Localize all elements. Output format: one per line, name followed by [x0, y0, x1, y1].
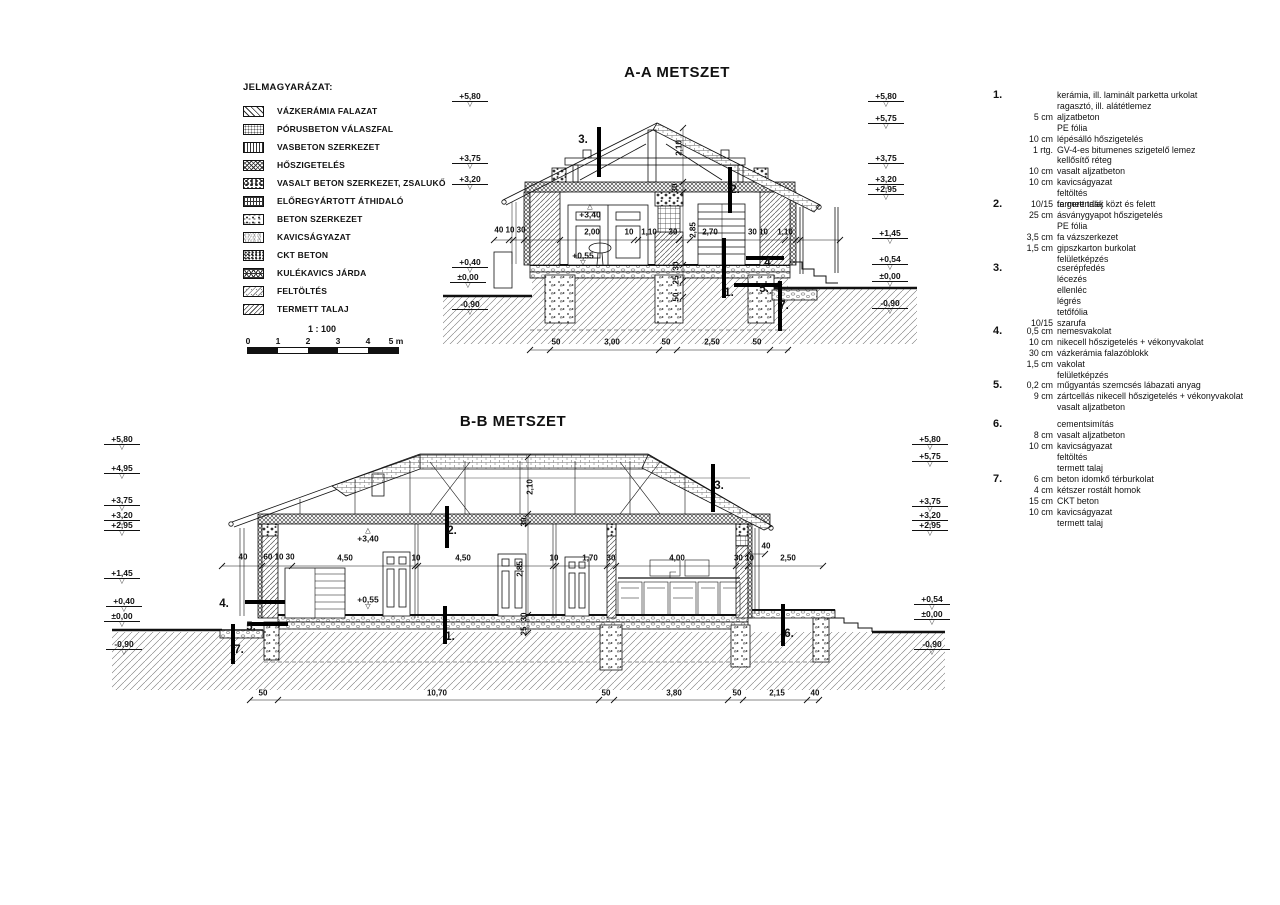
callout-number: 2. [447, 525, 457, 537]
legend: JELMAGYARÁZAT: VÁZKERÁMIA FALAZAT PÓRUSB… [243, 82, 473, 318]
dimension-label: 50 [753, 338, 762, 347]
note-row: 10 cmnikecell hőszigetelés + vékonyvakol… [1013, 337, 1280, 348]
legend-swatch [243, 106, 264, 117]
note: 2.10/15fa gerendák közt és felett25 cmás… [993, 199, 1280, 264]
legend-item: KULÉKAVICS JÁRDA [243, 264, 473, 282]
callout-number: 3. [578, 134, 588, 146]
dimension-label: 40 [239, 553, 248, 562]
blueprint-sheet: A-A METSZET B-B METSZET JELMAGYARÁZAT: V… [0, 0, 1280, 905]
level-triangle-icon [887, 239, 892, 245]
legend-swatch [243, 160, 264, 171]
legend-item-label: PÓRUSBETON VÁLASZFAL [277, 124, 393, 134]
level-triangle-icon [465, 283, 470, 289]
note-row: tetőfólia [1013, 307, 1280, 318]
note-number: 7. [993, 473, 1002, 485]
note-row: vasalt aljzatbeton [1013, 402, 1280, 413]
legend-swatch [243, 124, 264, 135]
dimension-label: 50 [602, 689, 611, 698]
scale-tick-label: 4 [366, 336, 371, 346]
note-row: 10/15fa gerendák közt és felett [1013, 199, 1280, 210]
note-row: ragasztó, ill. alátétlemez [1013, 101, 1280, 112]
level-marker: ±0,00 [450, 273, 486, 289]
bb-drawing [110, 430, 960, 710]
note-row: cserépfedés [1013, 263, 1280, 274]
note-row: 30 cmvázkerámia falazóblokk [1013, 348, 1280, 359]
legend-swatch [243, 268, 264, 279]
note-number: 2. [993, 198, 1002, 210]
note-row: 0,2 cmműgyantás szemcsés lábazati anyag [1013, 380, 1280, 391]
dimension-label: 10,70 [427, 689, 447, 698]
level-triangle-icon [883, 195, 888, 201]
note-row: feltöltés [1013, 188, 1280, 199]
level-marker: -0,90 [872, 299, 908, 315]
level-marker: +5,80 [452, 92, 488, 108]
dimension-label: 2,85 [516, 561, 525, 577]
callout-number: 1. [724, 287, 734, 299]
dimension-label: 30 [672, 262, 681, 271]
dimension-label: 1,10 [641, 228, 657, 237]
level-marker: -0,90 [452, 300, 488, 316]
callout-number: 7. [779, 300, 789, 312]
legend-item: VASBETON SZERKEZET [243, 138, 473, 156]
legend-item: KAVICSÁGYAZAT [243, 228, 473, 246]
dimension-label: 2,15 [769, 689, 785, 698]
scale-tick-label: 3 [336, 336, 341, 346]
callout-number: 4. [764, 257, 774, 269]
section-title-bb: B-B METSZET [413, 413, 613, 430]
dimension-label: 1,10 [777, 228, 793, 237]
dimension-label: 30 [671, 184, 680, 193]
level-triangle-icon [119, 531, 124, 537]
level-triangle-icon [119, 579, 124, 585]
callout-number: 3. [714, 480, 724, 492]
callout-number: 2. [730, 184, 740, 196]
level-marker: +3,75 [868, 154, 904, 170]
level-marker: +3,20 [452, 175, 488, 191]
note-row: 4 cmkétszer rostált homok [1013, 485, 1280, 496]
note-number: 4. [993, 325, 1002, 337]
scale-bar-graphic [247, 347, 399, 354]
scale-segment [248, 348, 278, 353]
spot-triangle-icon [365, 605, 370, 611]
legend-item: BETON SZERKEZET [243, 210, 473, 228]
level-triangle-icon [883, 164, 888, 170]
note-row: kellősítő réteg [1013, 155, 1280, 166]
note-row: 10 cmkavicságyazat [1013, 507, 1280, 518]
note-row: 8 cmvasalt aljzatbeton [1013, 430, 1280, 441]
dimension-label: 30 10 [734, 554, 754, 563]
level-triangle-icon [929, 620, 934, 626]
note-row: 3,5 cmfa vázszerkezet [1013, 232, 1280, 243]
note-row: lécezés [1013, 274, 1280, 285]
note: 6.cementsimítás8 cmvasalt aljzatbeton10 … [993, 419, 1280, 474]
level-marker: +3,75 [452, 154, 488, 170]
legend-item-label: VASALT BETON SZERKEZET, ZSALUKŐ [277, 178, 446, 188]
callout-bar [597, 127, 601, 177]
level-triangle-icon [927, 462, 932, 468]
legend-item: HŐSZIGETELÉS [243, 156, 473, 174]
level-marker: +2,95 [912, 521, 948, 537]
note-row: 10 cmlépésálló hőszigetelés [1013, 134, 1280, 145]
level-marker: +0,54 [872, 255, 908, 271]
note-number: 1. [993, 89, 1002, 101]
note-row: PE fólia [1013, 123, 1280, 134]
dimension-label: 2,50 [704, 338, 720, 347]
legend-swatch [243, 142, 264, 153]
note: 5.0,2 cmműgyantás szemcsés lábazati anya… [993, 380, 1280, 413]
legend-swatch [243, 232, 264, 243]
dimension-label: 40 10 30 [494, 226, 525, 235]
note-row: 9 cmzártcellás nikecell hőszigetelés + v… [1013, 391, 1280, 402]
level-triangle-icon [883, 124, 888, 130]
legend-items: VÁZKERÁMIA FALAZAT PÓRUSBETON VÁLASZFAL … [243, 102, 473, 318]
dimension-label: 4,50 [337, 554, 353, 563]
dimension-label: 2,10 [675, 140, 684, 156]
scale-segment [338, 348, 368, 353]
legend-item-label: BETON SZERKEZET [277, 214, 363, 224]
note: 1.kerámia, ill. laminált parketta urkola… [993, 90, 1280, 210]
callout-number: 5. [759, 283, 769, 295]
note-row: 10 cmkavicságyazat [1013, 441, 1280, 452]
level-triangle-icon [927, 531, 932, 537]
spot-level: +3,40 [579, 205, 601, 220]
note-row: 1,5 cmgipszkarton burkolat [1013, 243, 1280, 254]
legend-item-label: VÁZKERÁMIA FALAZAT [277, 106, 377, 116]
spot-triangle-icon [580, 261, 585, 267]
legend-item: FELTÖLTÉS [243, 282, 473, 300]
legend-swatch [243, 178, 264, 189]
legend-item-label: VASBETON SZERKEZET [277, 142, 380, 152]
aa-graphics [443, 123, 917, 353]
level-triangle-icon [467, 310, 472, 316]
dimension-label: 10 [625, 228, 634, 237]
level-triangle-icon [887, 309, 892, 315]
level-triangle-icon [467, 185, 472, 191]
dimension-label: 2,70 [702, 228, 718, 237]
level-marker: ±0,00 [914, 610, 950, 626]
note-row: termett talaj [1013, 463, 1280, 474]
dimension-label: 1,70 [582, 554, 598, 563]
level-marker: +4,95 [104, 464, 140, 480]
legend-item: TERMETT TALAJ [243, 300, 473, 318]
note: 7.6 cmbeton idomkő térburkolat4 cmkétsze… [993, 474, 1280, 529]
dimension-label: 2,50 [780, 554, 796, 563]
legend-swatch [243, 286, 264, 297]
callout-number: 7. [234, 644, 244, 656]
legend-item: VÁZKERÁMIA FALAZAT [243, 102, 473, 120]
dimension-label: 2,00 [584, 228, 600, 237]
callout-bar [245, 600, 285, 604]
dimension-label: 3,00 [604, 338, 620, 347]
legend-swatch [243, 196, 264, 207]
dimension-label: 40 [811, 689, 820, 698]
level-triangle-icon [119, 445, 124, 451]
dimension-label: 30 [520, 613, 529, 622]
dimension-label: 10 [550, 554, 559, 563]
note-row: 5 cmaljzatbeton [1013, 112, 1280, 123]
legend-item: CKT BETON [243, 246, 473, 264]
level-triangle-icon [887, 282, 892, 288]
dimension-label: 10 [412, 554, 421, 563]
level-triangle-icon [467, 102, 472, 108]
spot-level: +0,55 [572, 252, 594, 267]
level-marker: +5,80 [912, 435, 948, 451]
level-marker: ±0,00 [872, 272, 908, 288]
spot-value: +3,40 [357, 535, 379, 544]
level-marker: +5,80 [868, 92, 904, 108]
dimension-label: 25 [672, 276, 681, 285]
dimension-label: 50 [552, 338, 561, 347]
level-triangle-icon [121, 650, 126, 656]
dimension-label: 50 [733, 689, 742, 698]
note-row: felületképzés [1013, 370, 1280, 381]
dimension-label: 25 [520, 627, 529, 636]
scale-segment [278, 348, 308, 353]
level-marker: +2,95 [868, 185, 904, 201]
level-marker: ±0,00 [104, 612, 140, 628]
level-marker: +1,45 [872, 229, 908, 245]
note-row: 25 cmásványgyapot hőszigetelés [1013, 210, 1280, 221]
scale-tick-label: 2 [306, 336, 311, 346]
note-row: kerámia, ill. laminált parketta urkolat [1013, 90, 1280, 101]
note-row: 1 rtg.GV-4-es bitumenes szigetelő lemez [1013, 145, 1280, 156]
scale-segment [308, 348, 338, 353]
note-row: 1,5 cmvakolat [1013, 359, 1280, 370]
spot-value: +3,40 [579, 211, 601, 220]
legend-item: VASALT BETON SZERKEZET, ZSALUKŐ [243, 174, 473, 192]
legend-item-label: CKT BETON [277, 250, 328, 260]
note: 3.cserépfedéslécezésellenléclégréstetőfó… [993, 263, 1280, 328]
dimension-label: 30 [520, 518, 529, 527]
note-row: PE fólia [1013, 221, 1280, 232]
dimension-label: 2,10 [526, 479, 535, 495]
note-row: ellenléc [1013, 285, 1280, 296]
note-row: cementsimítás [1013, 419, 1280, 430]
scale-tick-label: 1 [276, 336, 281, 346]
level-marker: +1,45 [104, 569, 140, 585]
legend-swatch [243, 304, 264, 315]
level-marker: +5,75 [868, 114, 904, 130]
note-number: 3. [993, 262, 1002, 274]
dimension-label: 40 [762, 542, 771, 551]
level-marker: -0,90 [914, 640, 950, 656]
level-marker: -0,90 [106, 640, 142, 656]
note-row: légrés [1013, 296, 1280, 307]
level-marker: +2,95 [104, 521, 140, 537]
note-number: 6. [993, 418, 1002, 430]
callout-number: 6. [784, 628, 794, 640]
bb-kitchen [618, 560, 740, 615]
level-triangle-icon [119, 474, 124, 480]
level-triangle-icon [883, 102, 888, 108]
callout-number: 5. [246, 621, 256, 633]
level-triangle-icon [467, 164, 472, 170]
dimension-label: 60 10 30 [263, 553, 294, 562]
note-row: 15 cmCKT beton [1013, 496, 1280, 507]
dimension-label: 4,00 [669, 554, 685, 563]
legend-item-label: ELŐREGYÁRTOTT ÁTHIDALÓ [277, 196, 404, 206]
callout-bar [734, 283, 778, 287]
dimension-label: 50 [662, 338, 671, 347]
legend-swatch [243, 250, 264, 261]
legend-item-label: FELTÖLTÉS [277, 286, 327, 296]
legend-title: JELMAGYARÁZAT: [243, 82, 473, 93]
spot-level: +3,40 [357, 529, 379, 544]
scale-segment [368, 348, 398, 353]
spot-level: +0,55 [357, 596, 379, 611]
note: 4.0,5 cmnemesvakolat10 cmnikecell hőszig… [993, 326, 1280, 381]
note-row: termett talaj [1013, 518, 1280, 529]
level-marker: +5,75 [912, 452, 948, 468]
dimension-label: 3,80 [666, 689, 682, 698]
level-triangle-icon [929, 650, 934, 656]
legend-item: ELŐREGYÁRTOTT ÁTHIDALÓ [243, 192, 473, 210]
callout-number: 4. [219, 598, 229, 610]
dimension-label: 30 [607, 554, 616, 563]
note-row: 10 cmvasalt aljzatbeton [1013, 166, 1280, 177]
callout-number: 1. [445, 631, 455, 643]
dimension-label: 30 10 [748, 228, 768, 237]
legend-item-label: HŐSZIGETELÉS [277, 160, 345, 170]
legend-swatch [243, 214, 264, 225]
scale-tick-label: 5 m [389, 336, 404, 346]
scale-ratio: 1 : 100 [247, 324, 397, 334]
legend-item-label: KAVICSÁGYAZAT [277, 232, 351, 242]
dimension-label: 50 [672, 293, 681, 302]
section-title-aa: A-A METSZET [577, 64, 777, 81]
level-triangle-icon [119, 622, 124, 628]
legend-item-label: KULÉKAVICS JÁRDA [277, 268, 366, 278]
note-number: 5. [993, 379, 1002, 391]
dimension-label: 50 [259, 689, 268, 698]
dimension-label: 4,50 [455, 554, 471, 563]
level-marker: +5,80 [104, 435, 140, 451]
legend-item-label: TERMETT TALAJ [277, 304, 349, 314]
dimension-label: 2,85 [689, 222, 698, 238]
note-row: feltöltés [1013, 452, 1280, 463]
scale-tick-label: 0 [246, 336, 251, 346]
note-row: 0,5 cmnemesvakolat [1013, 326, 1280, 337]
legend-item: PÓRUSBETON VÁLASZFAL [243, 120, 473, 138]
note-row: 6 cmbeton idomkő térburkolat [1013, 474, 1280, 485]
aa-drawing [440, 88, 920, 360]
dimension-label: 30 [669, 228, 678, 237]
note-row: 10 cmkavicságyazat [1013, 177, 1280, 188]
